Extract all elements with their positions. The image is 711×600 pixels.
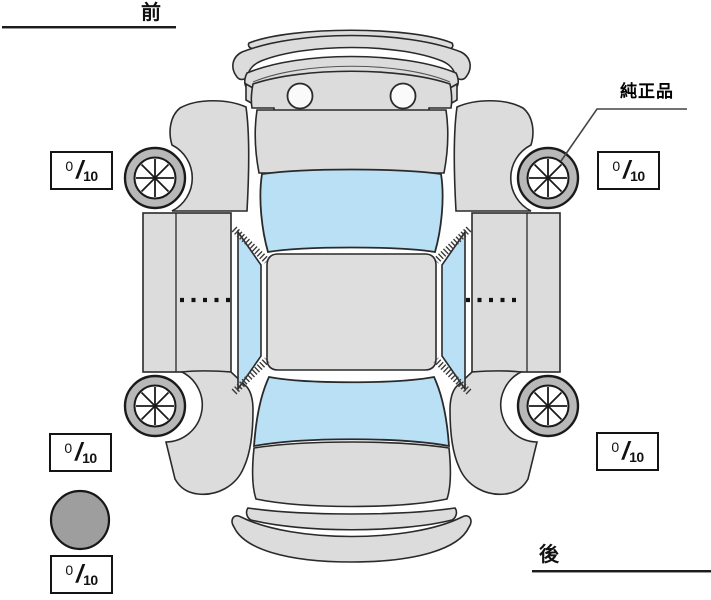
tread-separator: / xyxy=(76,156,83,185)
tread-value: 0 xyxy=(612,158,620,174)
front-fender-right xyxy=(454,101,533,211)
tread-value: 0 xyxy=(65,158,73,174)
tread-max: 10 xyxy=(630,168,645,184)
car-top-view-svg xyxy=(0,0,711,600)
hood xyxy=(255,110,447,173)
headlight-right xyxy=(391,84,416,109)
tread-box-spare: 0/10 xyxy=(50,555,113,594)
car-body xyxy=(143,30,560,562)
wheel-front-left xyxy=(125,148,185,208)
rear-window xyxy=(254,377,449,446)
tread-box-front-left: 0/10 xyxy=(50,151,113,190)
rear-rule xyxy=(532,570,711,573)
wheel-front-right xyxy=(518,148,578,208)
tread-max: 10 xyxy=(629,449,644,465)
windshield xyxy=(260,170,442,253)
tread-value: 0 xyxy=(611,439,619,455)
wheel-rear-left xyxy=(125,376,185,436)
trunk-lid xyxy=(253,442,451,507)
wheel-spokes xyxy=(136,159,174,197)
front-rule xyxy=(2,26,176,29)
wheel-rear-right xyxy=(518,376,578,436)
wheel-spokes xyxy=(136,387,174,425)
door-panel-right xyxy=(472,213,560,372)
tread-max: 10 xyxy=(83,168,98,184)
tread-separator: / xyxy=(75,438,82,467)
roof xyxy=(267,254,436,370)
wheel-spokes xyxy=(529,159,567,197)
tread-max: 10 xyxy=(82,450,97,466)
front-fender-left xyxy=(170,101,249,211)
tread-max: 10 xyxy=(83,572,98,588)
rear-label: 後 xyxy=(539,544,559,564)
genuine-part-label: 純正品 xyxy=(620,84,674,101)
door-panel-left xyxy=(143,213,231,372)
tread-box-rear-right: 0/10 xyxy=(596,432,659,471)
vehicle-inspection-diagram: 前 後 純正品 0/10 0/10 0/10 0/10 0/10 xyxy=(0,0,711,600)
tread-separator: / xyxy=(622,437,629,466)
headlight-left xyxy=(288,84,313,109)
rear-bumper-trim xyxy=(247,508,457,530)
tread-box-rear-left: 0/10 xyxy=(49,433,112,472)
tread-box-front-right: 0/10 xyxy=(597,151,660,190)
wheel-spokes xyxy=(529,387,567,425)
tread-separator: / xyxy=(623,156,630,185)
headlight-panel xyxy=(251,71,451,112)
spare-tire xyxy=(51,491,109,549)
tread-value: 0 xyxy=(64,440,72,456)
tread-value: 0 xyxy=(65,562,73,578)
front-label: 前 xyxy=(141,2,161,22)
tread-separator: / xyxy=(76,560,83,589)
